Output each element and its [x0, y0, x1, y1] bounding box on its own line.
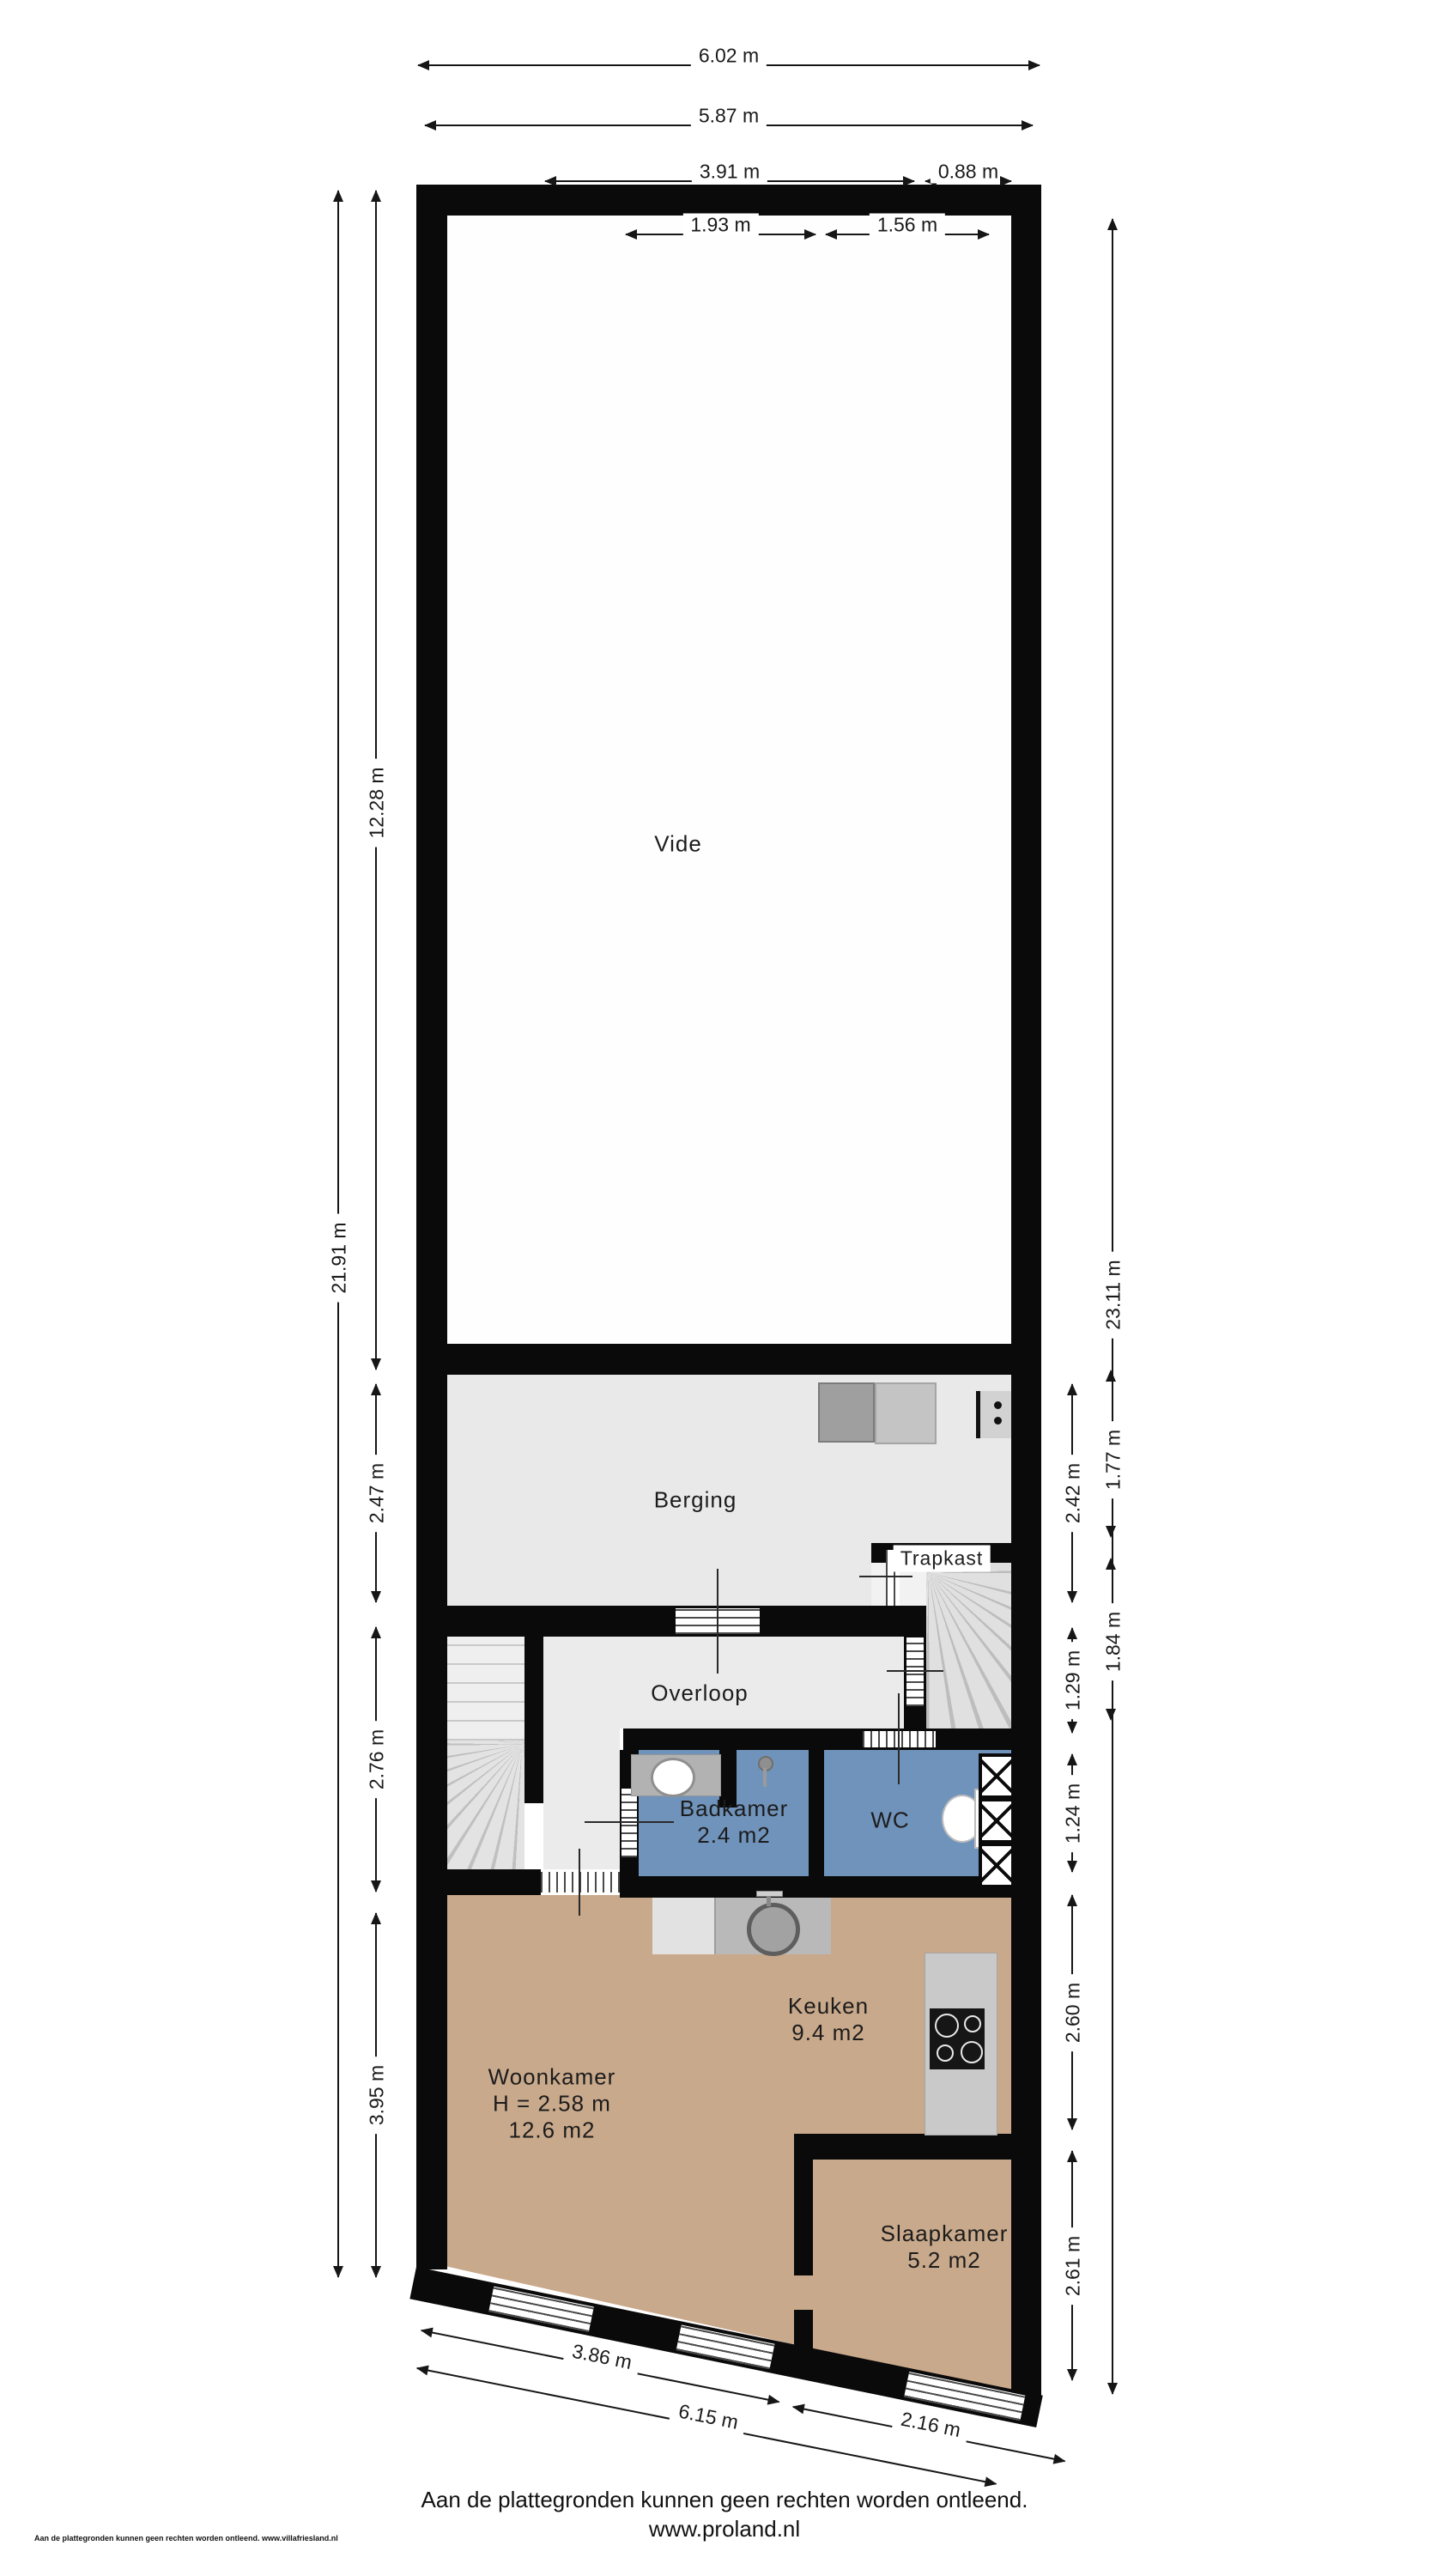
burner: [961, 2041, 983, 2063]
room-label-woonkamer: Woonkamer H = 2.58 m 12.6 m2: [488, 2064, 616, 2144]
door-trapkast-tick: [859, 1576, 912, 1577]
room-area: 5.2 m2: [907, 2247, 981, 2273]
room-label-vide: Vide: [654, 831, 702, 858]
dim-right-slaapkamer: 2.61 m: [1071, 2151, 1073, 2380]
boiler-dot: [994, 1417, 1002, 1425]
room-name: Keuken: [788, 1993, 869, 2019]
room-overloop-floor-lower: [543, 1728, 620, 1869]
dim-label: 21.91 m: [328, 1213, 351, 1302]
dim-left-woonkamer: 3.95 m: [375, 1913, 377, 2277]
boiler-dot: [994, 1401, 1002, 1409]
room-area: 2.4 m2: [697, 1822, 771, 1848]
dim-arrow: [1106, 1526, 1116, 1538]
wall-badkamer-wc-divider: [809, 1750, 824, 1876]
wall-right: [1011, 185, 1041, 2396]
bathroom-basin: [651, 1758, 695, 1797]
wall-keuken-top: [620, 1876, 1011, 1898]
dryer-icon: [875, 1382, 937, 1444]
wall-overloop-badkamer: [623, 1728, 1011, 1750]
room-label-berging: Berging: [654, 1487, 737, 1514]
dim-right-berging: 2.42 m: [1071, 1384, 1073, 1602]
dim-top-391: 3.91 m: [545, 180, 914, 182]
burner: [964, 2015, 981, 2032]
kitchen-sink-counter: [652, 1898, 831, 1954]
floorplan-canvas: Vide Berging Trapkast Overloop Badkamer …: [0, 0, 1449, 2576]
room-vide-floor: [447, 216, 1011, 1344]
room-name: Slaapkamer: [881, 2221, 1009, 2246]
wall-left: [416, 185, 447, 2269]
dim-label: 12.28 m: [366, 758, 389, 847]
room-area: 12.6 m2: [509, 2117, 596, 2143]
wall-vide-berging: [416, 1344, 1041, 1375]
dim-label: 1.24 m: [1062, 1774, 1085, 1851]
dim-label: 2.61 m: [1062, 2227, 1085, 2304]
dim-label: 23.11 m: [1102, 1251, 1125, 1338]
bathroom-sink-counter: [631, 1754, 721, 1796]
room-area: 9.4 m2: [791, 2020, 865, 2045]
stairs-niche-landing: [446, 1626, 524, 1741]
dim-top-193: 1.93 m: [626, 234, 815, 235]
shower-arm: [763, 1768, 767, 1787]
door-berging-tick: [717, 1569, 718, 1674]
shaft-icon: [979, 1843, 1015, 1888]
stairs-niche-fan: [446, 1741, 524, 1876]
door-woonkamer: [541, 1872, 620, 1893]
dim-left-total: 21.91 m: [337, 191, 339, 2277]
disclaimer-text: Aan de plattegronden kunnen geen rechten…: [0, 2487, 1449, 2513]
dim-label: 2.47 m: [366, 1455, 389, 1532]
wall-berging-overloop: [416, 1606, 904, 1637]
dim-label: 6.02 m: [691, 45, 767, 68]
door-stairwell-tick: [887, 1670, 943, 1672]
room-name: Badkamer: [680, 1795, 789, 1821]
room-height: H = 2.58 m: [493, 2091, 611, 2117]
dim-label: 3.91 m: [692, 161, 767, 184]
washer-icon: [818, 1382, 875, 1443]
dim-left-berging: 2.47 m: [375, 1384, 377, 1602]
dim-left-vide: 12.28 m: [375, 191, 377, 1370]
kitchen-faucet-bar: [756, 1891, 783, 1897]
dim-label: 5.87 m: [691, 105, 767, 128]
kitchen-counter-right: [925, 1953, 997, 2136]
wall-niche-right: [524, 1626, 543, 1803]
room-label-wc: WC: [870, 1807, 909, 1834]
room-label-overloop: Overloop: [651, 1680, 749, 1707]
dim-right-total: 23.11 m 1.77 m 1.84 m: [1112, 219, 1113, 2394]
dim-label: 3.95 m: [366, 2057, 389, 2134]
room-label-keuken: Keuken 9.4 m2: [788, 1993, 869, 2046]
door-wc-tick: [898, 1693, 900, 1784]
dim-label: 1.93 m: [682, 214, 758, 237]
door-woonkamer-tick: [579, 1849, 580, 1916]
dim-top-156: 1.56 m: [826, 234, 989, 235]
dim-label: 1.84 m: [1102, 1603, 1125, 1680]
door-stairwell: [906, 1637, 924, 1706]
kitchen-sink-basin: [747, 1903, 800, 1956]
stairs-trapkast-fan: [926, 1563, 1011, 1730]
shaft-icon: [979, 1798, 1015, 1844]
boiler-icon: [976, 1391, 1016, 1438]
dim-arrow: [1106, 1370, 1116, 1382]
room-name: Woonkamer: [488, 2064, 616, 2090]
room-label-badkamer: Badkamer 2.4 m2: [680, 1795, 789, 1849]
dim-top-602: 6.02 m: [418, 64, 1040, 66]
dim-right-overloop: 1.29 m: [1071, 1628, 1073, 1733]
wall-slaapkamer-partition-a: [794, 2134, 813, 2275]
dim-right-keuken: 2.60 m: [1071, 1895, 1073, 2129]
stove-icon: [930, 2008, 985, 2069]
dim-top-587: 5.87 m: [425, 125, 1033, 126]
kitchen-counter-light: [652, 1898, 716, 1954]
wall-overloop-woonkamer: [416, 1869, 541, 1895]
wall-top: [416, 185, 1041, 216]
burner: [935, 2014, 959, 2038]
dim-label: 6.15 m: [669, 2398, 748, 2436]
dim-arrow: [1106, 1709, 1116, 1721]
dim-label: 2.60 m: [1062, 1973, 1085, 2050]
small-print-text: Aan de plattegronden kunnen geen rechten…: [34, 2534, 338, 2543]
dim-top-088: 0.88 m: [925, 180, 1011, 182]
door-badkamer: [621, 1789, 637, 1857]
wall-slaapkamer-top: [794, 2134, 1011, 2160]
floorplan: Vide Berging Trapkast Overloop Badkamer …: [416, 185, 1041, 2396]
dim-label: 0.88 m: [931, 161, 1006, 184]
door-badkamer-tick: [585, 1821, 674, 1823]
burner: [937, 2044, 954, 2062]
dim-label: 2.76 m: [366, 1721, 389, 1798]
dim-arrow: [1106, 1558, 1116, 1570]
room-label-slaapkamer: Slaapkamer 5.2 m2: [881, 2221, 1009, 2274]
dim-label: 2.42 m: [1062, 1455, 1085, 1532]
dim-label: 1.77 m: [1102, 1421, 1125, 1498]
shaft-icon: [979, 1753, 1015, 1799]
dim-label: 1.56 m: [870, 214, 945, 237]
dim-left-overloop: 2.76 m: [375, 1627, 377, 1892]
dim-label: 1.29 m: [1062, 1642, 1085, 1719]
room-label-trapkast: Trapkast: [894, 1546, 991, 1572]
dim-right-badkamer: 1.24 m: [1071, 1754, 1073, 1872]
